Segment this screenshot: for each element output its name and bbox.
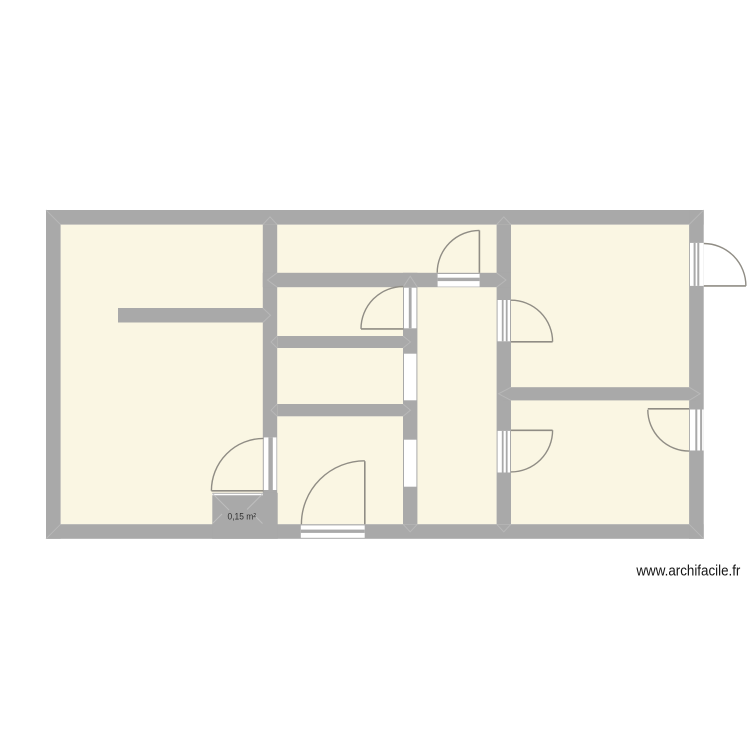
svg-text:www.archifacile.fr: www.archifacile.fr <box>635 563 740 579</box>
svg-text:0,15 m²: 0,15 m² <box>228 512 257 522</box>
